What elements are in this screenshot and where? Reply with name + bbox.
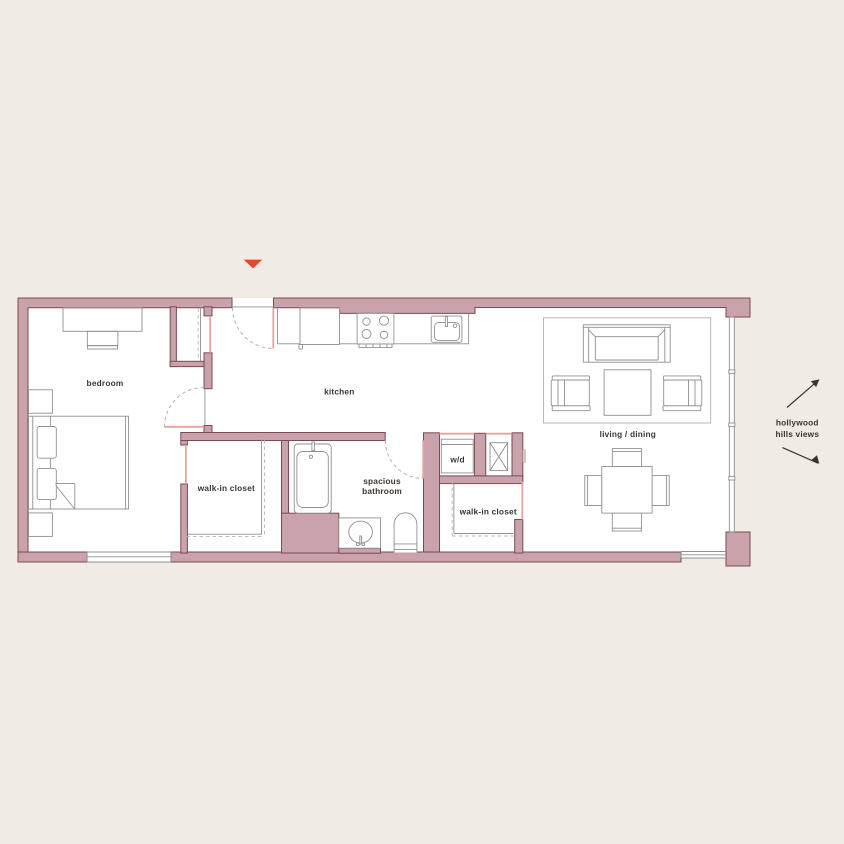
svg-text:spacious: spacious <box>363 476 401 486</box>
svg-text:hills views: hills views <box>775 429 819 439</box>
svg-text:bathroom: bathroom <box>362 486 402 496</box>
svg-text:living / dining: living / dining <box>600 429 656 439</box>
svg-text:walk-in closet: walk-in closet <box>197 483 255 493</box>
svg-text:walk-in closet: walk-in closet <box>459 506 517 516</box>
svg-text:hollywood: hollywood <box>776 418 819 428</box>
svg-text:bedroom: bedroom <box>87 378 124 388</box>
svg-text:kitchen: kitchen <box>324 387 354 397</box>
svg-text:w/d: w/d <box>449 455 464 465</box>
